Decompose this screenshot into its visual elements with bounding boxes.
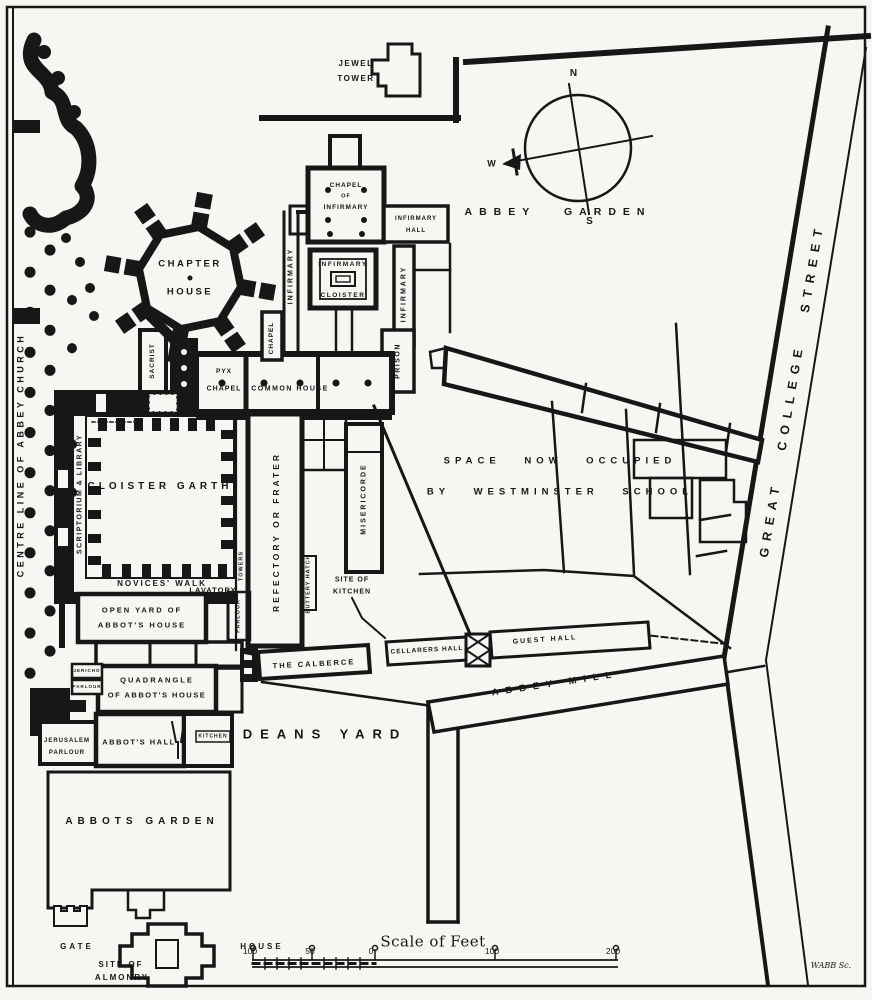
label-centre-line: CENTRE LINE OF ABBEY CHURCH — [17, 333, 26, 578]
scale-tick-100l: 100 — [243, 947, 257, 956]
label-common-house: COMMON HOUSE — [251, 386, 329, 393]
label-misericorde: MISERICORDE — [361, 463, 368, 534]
label-buttery-hatch: BUTTERY HATCH — [306, 554, 312, 613]
label-jewel-tower-2: TOWER — [337, 75, 374, 83]
label-gate: GATE — [60, 943, 94, 951]
label-towers: TOWERS — [239, 551, 245, 581]
label-site-of-almonry: SITE OF — [98, 961, 143, 969]
jewel-tower — [372, 44, 420, 96]
label-infirmary-cloister: INFIRMARY — [318, 262, 367, 269]
label-jerusalem-parlour: JERUSALEM — [44, 738, 90, 744]
scale-tick-50: 50 — [305, 947, 314, 956]
label-refectory: REFECTORY OR FRATER — [272, 452, 281, 612]
label-site-of-almonry-2: ALMONRY — [95, 974, 149, 982]
label-sacrist: SACRIST — [150, 343, 157, 379]
label-chapel-of-infirmary-3: INFIRMARY — [324, 205, 369, 212]
plan-drawing — [0, 0, 872, 1000]
compass-west: W — [487, 160, 497, 169]
label-school-space: SPACE NOW OCCUPIED — [444, 456, 677, 466]
label-deans-yard: DEANS YARD — [243, 728, 408, 741]
label-chapel-of-infirmary-2: OF — [341, 194, 351, 200]
label-open-yard: OPEN YARD OF — [102, 606, 182, 614]
label-infirmary-cloister-2: CLOISTER — [321, 293, 366, 300]
label-open-yard-2: ABBOT'S HOUSE — [98, 621, 186, 629]
label-jerusalem-parlour-2: PARLOUR — [49, 750, 85, 756]
garth-buttresses — [88, 418, 233, 577]
label-kitchen: KITCHEN — [198, 735, 227, 740]
westminster-abbey-plan: CENTRE LINE OF ABBEY CHURCH JEWEL TOWER … — [0, 0, 872, 1000]
label-infirmary-hall-2: HALL — [406, 228, 426, 234]
compass-rose — [502, 84, 652, 214]
label-chapter-house-2: HOUSE — [167, 287, 213, 297]
label-quadrangle-2: OF ABBOT'S HOUSE — [108, 691, 206, 699]
label-chapel-of-infirmary: CHAPEL — [330, 183, 363, 190]
abbots-garden — [48, 772, 230, 926]
label-abbey-garden: ABBEY GARDEN — [465, 207, 652, 218]
label-site-of-kitchen: SITE OF — [335, 577, 369, 584]
label-chapter-house: CHAPTER — [158, 259, 221, 269]
label-site-of-kitchen-2: KITCHEN — [333, 589, 371, 596]
label-lavatory: LAVATORY — [189, 586, 236, 594]
label-pyx-chapel: PYX — [216, 369, 232, 376]
label-chapel: CHAPEL — [269, 322, 276, 355]
label-scriptorium-library: SCRIPTORIUM & LIBRARY — [77, 434, 84, 554]
scale-tick-0: 0 — [369, 947, 374, 956]
label-pyx-chapel-2: CHAPEL — [207, 386, 242, 393]
abbey-mill — [428, 656, 764, 922]
scale-tick-100r: 100 — [485, 947, 499, 956]
label-infirmary-west: INFIRMARY — [288, 248, 295, 305]
label-infirmary-east: INFIRMARY — [401, 266, 408, 323]
label-jewel-tower: JEWEL — [338, 60, 373, 68]
scale-bar-title: Scale of Feet — [380, 935, 485, 950]
label-abbots-garden: ABBOTS GARDEN — [65, 817, 218, 827]
engraver-signature: WABB Sc. — [811, 962, 851, 970]
scale-tick-200: 200 — [606, 947, 620, 956]
label-quadrangle: QUADRANGLE — [120, 676, 194, 684]
label-parlour-east: PARLOUR — [236, 599, 242, 633]
label-school-space-2: BY WESTMINSTER SCHOOL — [427, 487, 693, 497]
great-college-street — [697, 28, 866, 985]
label-abbots-hall: ABBOT'S HALL — [102, 738, 176, 746]
label-jericho-parlour: JERICHO — [73, 669, 100, 674]
compass-north: N — [570, 69, 578, 79]
label-cloister-garth: CLOISTER GARTH — [88, 482, 233, 492]
label-jericho-parlour-2: PARLOUR — [73, 685, 102, 690]
label-infirmary-hall: INFIRMARY — [395, 216, 437, 222]
compass-south: S — [586, 217, 594, 227]
label-prison: PRISON — [395, 343, 402, 379]
refectory-range — [228, 406, 470, 646]
